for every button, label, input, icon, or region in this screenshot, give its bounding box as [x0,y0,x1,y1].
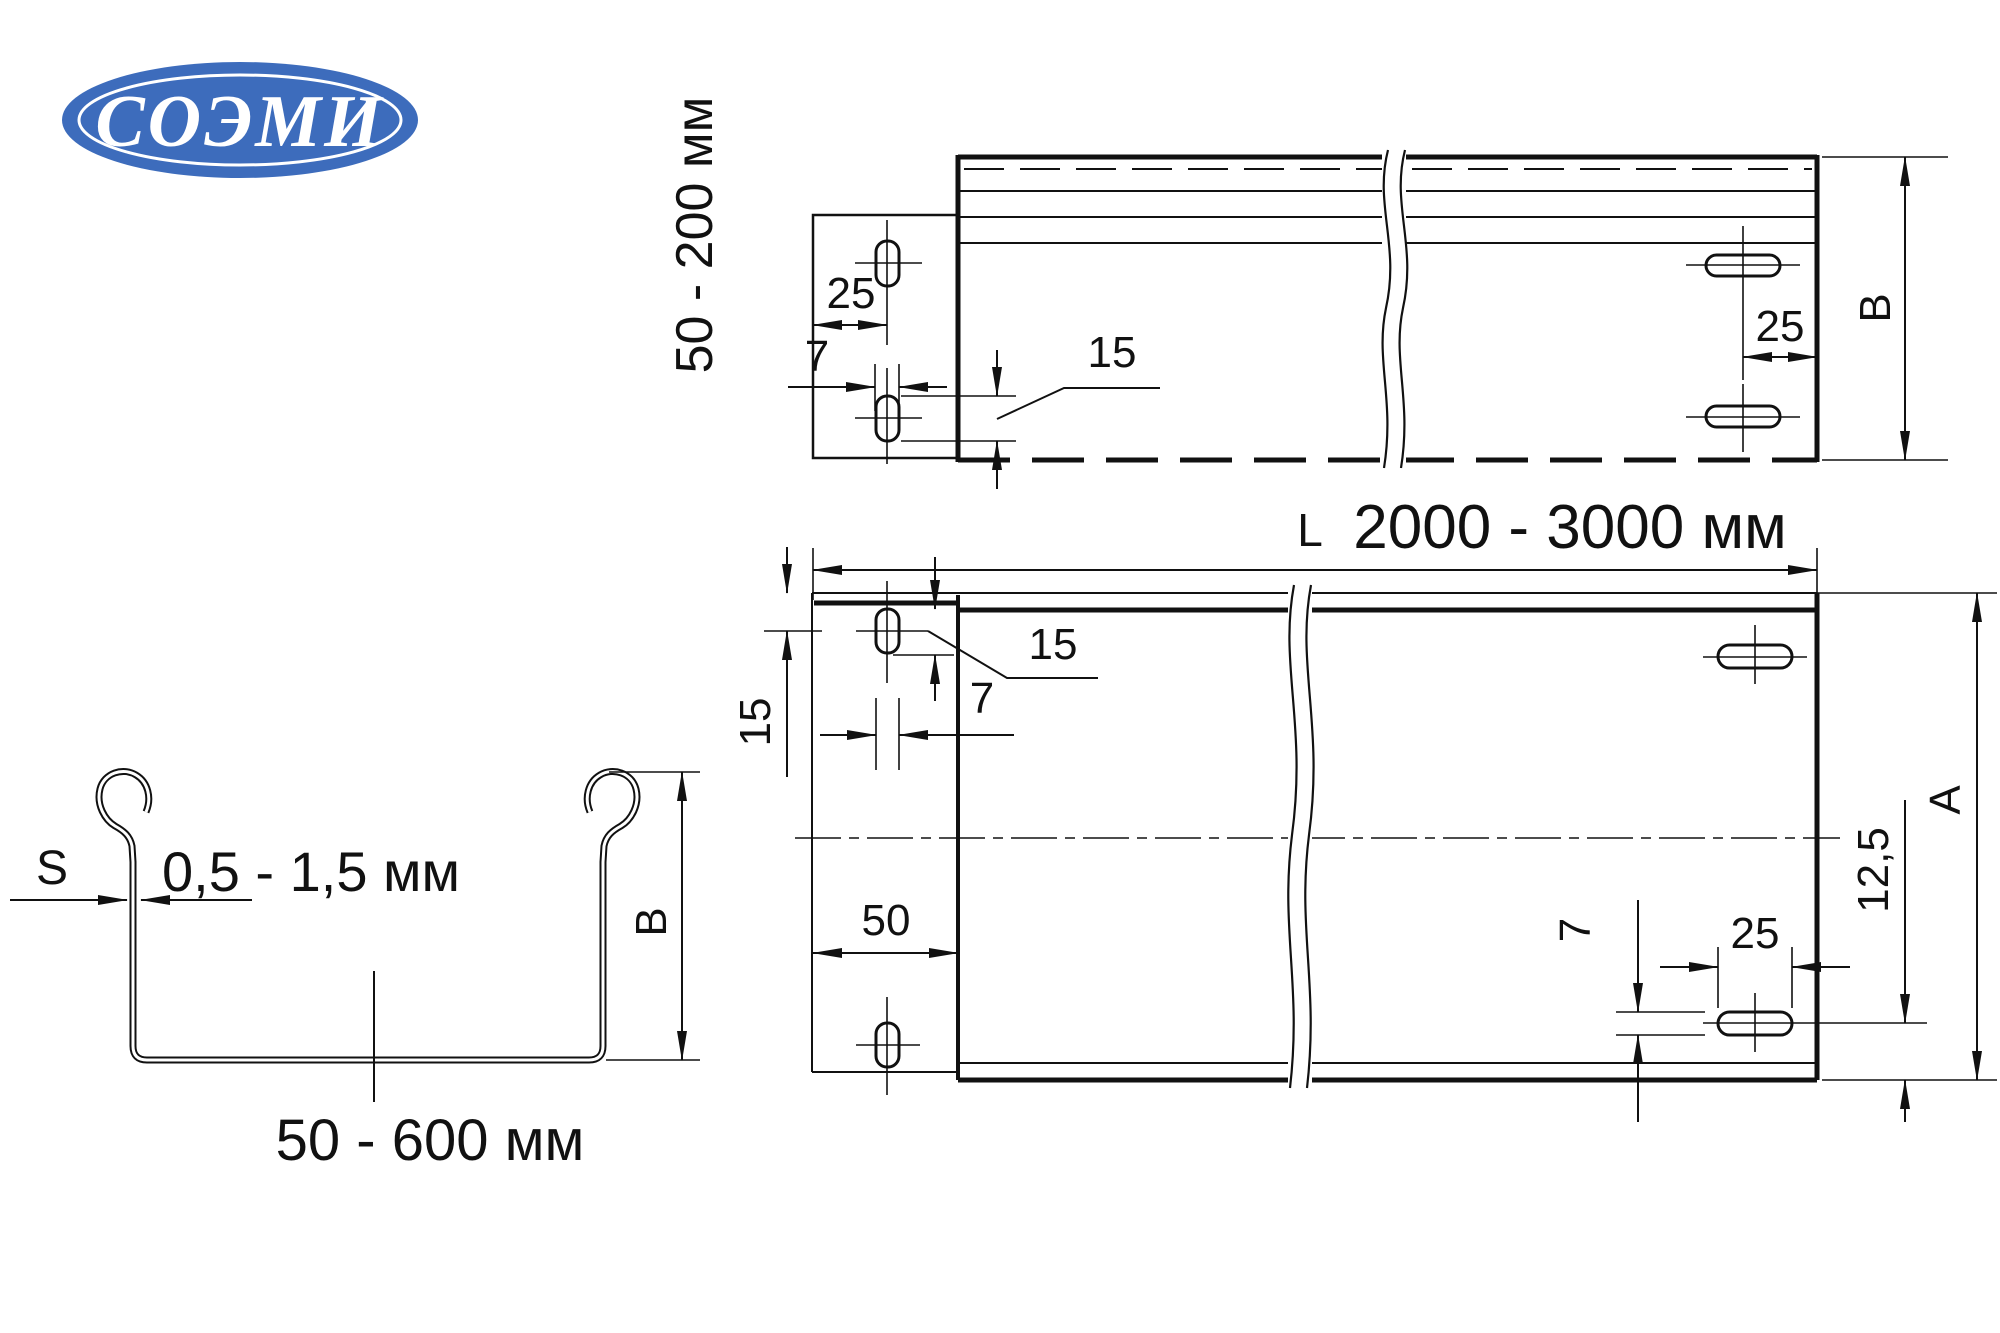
logo-text: СОЭМИ [95,81,384,163]
dim-plan-slot-width-bottom-label: 7 [1551,918,1600,942]
tab-slot-crosshairs [855,220,922,464]
dim-length-prefix: L [1297,504,1323,556]
side-view-tab [813,215,958,464]
drawing-canvas: СОЭМИ [0,0,2000,1333]
dim-height-B-label: B [1851,293,1900,322]
dim-width-A-label: A [1921,785,1970,815]
dim-plan-slot-width-top-label: 7 [970,674,994,723]
profile-inner-gap [99,771,637,1060]
dim-bottom-offset-label: 12,5 [1849,827,1898,913]
cross-section [10,771,700,1102]
plan-slot-top-left [856,581,928,683]
profile-outer [99,771,637,1060]
plan-view-body [795,593,1840,1080]
thickness-symbol-label: S [36,842,68,895]
plan-slot-top-right [1703,625,1807,684]
side-view-range-label: 50 - 200 мм [666,97,724,374]
dim-plan-slot-length-label: 15 [1029,620,1078,669]
dim-tab-width-label: 50 [862,896,911,945]
leader-line [997,388,1160,419]
dim-tab-slot-width-label: 7 [805,332,829,381]
dim-right-offset-label: 25 [1756,302,1805,351]
dim-plan-slot-width-bottom [1616,900,1705,1122]
dim-plan-slot-length-bottom-label: 25 [1731,909,1780,958]
dim-section-height-B-label: B [627,907,676,936]
dim-width-A [1817,593,1997,1080]
plan-view [764,547,1997,1122]
plan-view-break [1288,585,1314,1088]
technical-drawing-page: СОЭМИ [0,0,2000,1333]
plan-slot-bottom-left [856,997,920,1095]
dim-slot-length-label: 15 [1088,328,1137,377]
thickness-range-label: 0,5 - 1,5 мм [162,840,460,903]
section-width-range-label: 50 - 600 мм [276,1108,585,1173]
dim-edge-to-slot-label: 15 [731,698,780,747]
side-view-break [1382,150,1407,468]
dim-length-range: 2000 - 3000 мм [1353,493,1786,562]
dim-tab-offset-label: 25 [827,269,876,318]
company-logo: СОЭМИ [62,62,418,178]
